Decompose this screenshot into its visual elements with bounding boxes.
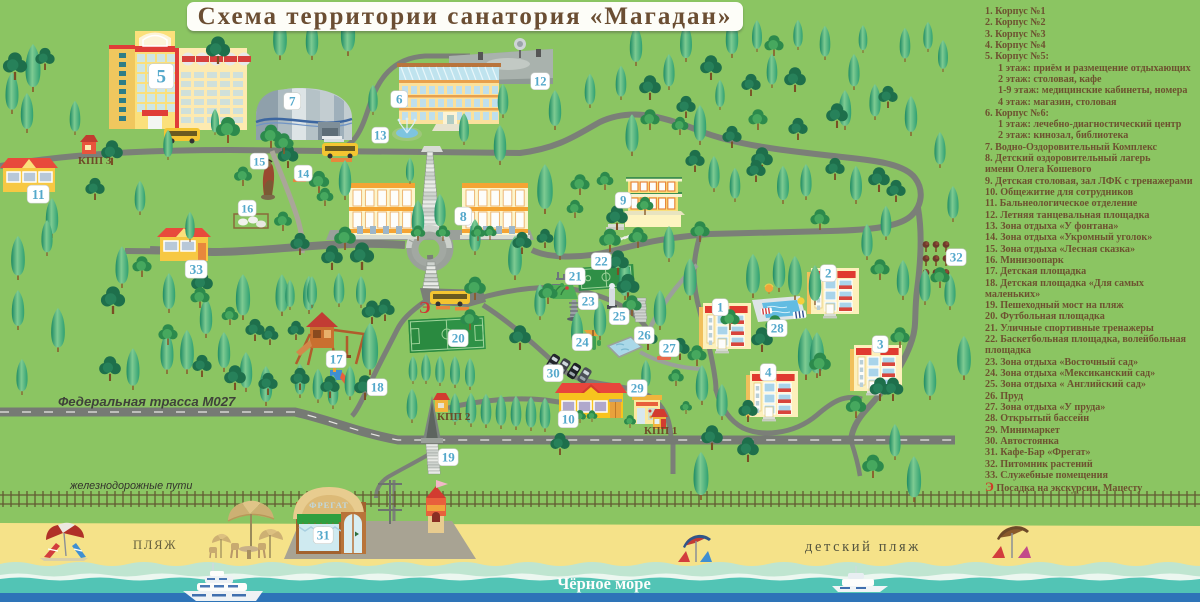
svg-text:17: 17 [330,352,344,367]
svg-text:29: 29 [631,381,645,396]
svg-text:32: 32 [950,250,963,265]
svg-text:железнодорожные пути: железнодорожные пути [69,480,192,492]
svg-text:22: 22 [595,254,608,269]
svg-text:4: 4 [765,365,772,380]
svg-text:28: 28 [771,321,785,336]
svg-text:15: 15 [253,154,265,168]
svg-text:27: 27 [663,341,677,356]
svg-text:6: 6 [396,92,403,107]
svg-text:Э: Э [419,298,431,317]
svg-text:7: 7 [289,94,296,109]
svg-text:Чёрное море: Чёрное море [557,574,651,593]
svg-text:13: 13 [374,128,387,142]
svg-text:12: 12 [534,75,547,89]
svg-text:23: 23 [582,294,596,309]
svg-text:14: 14 [297,166,309,180]
svg-text:19: 19 [442,450,456,465]
svg-text:детский пляж: детский пляж [805,539,921,555]
svg-text:25: 25 [613,309,627,324]
svg-text:1: 1 [717,300,724,315]
svg-text:31: 31 [317,528,330,543]
svg-text:24: 24 [576,335,590,350]
svg-text:ФРЕГАТ: ФРЕГАТ [309,500,349,510]
svg-text:18: 18 [371,380,385,395]
svg-text:9: 9 [620,193,626,207]
svg-text:2: 2 [825,266,832,281]
svg-text:21: 21 [569,269,582,284]
svg-text:8: 8 [460,210,467,225]
svg-text:33: 33 [189,262,203,277]
svg-text:20: 20 [452,331,465,346]
svg-text:Федеральная трасса М027: Федеральная трасса М027 [58,394,236,409]
svg-text:3: 3 [877,337,884,352]
svg-text:26: 26 [638,328,652,343]
svg-text:5: 5 [156,67,166,88]
svg-text:16: 16 [241,201,253,215]
svg-text:30: 30 [547,366,560,381]
svg-text:11: 11 [32,187,45,202]
svg-text:КПП 1: КПП 1 [644,425,677,437]
svg-text:10: 10 [562,412,575,427]
svg-text:ПЛЯЖ: ПЛЯЖ [133,538,177,552]
svg-text:КПП 2: КПП 2 [437,411,471,423]
svg-text:КПП 3: КПП 3 [78,155,112,167]
